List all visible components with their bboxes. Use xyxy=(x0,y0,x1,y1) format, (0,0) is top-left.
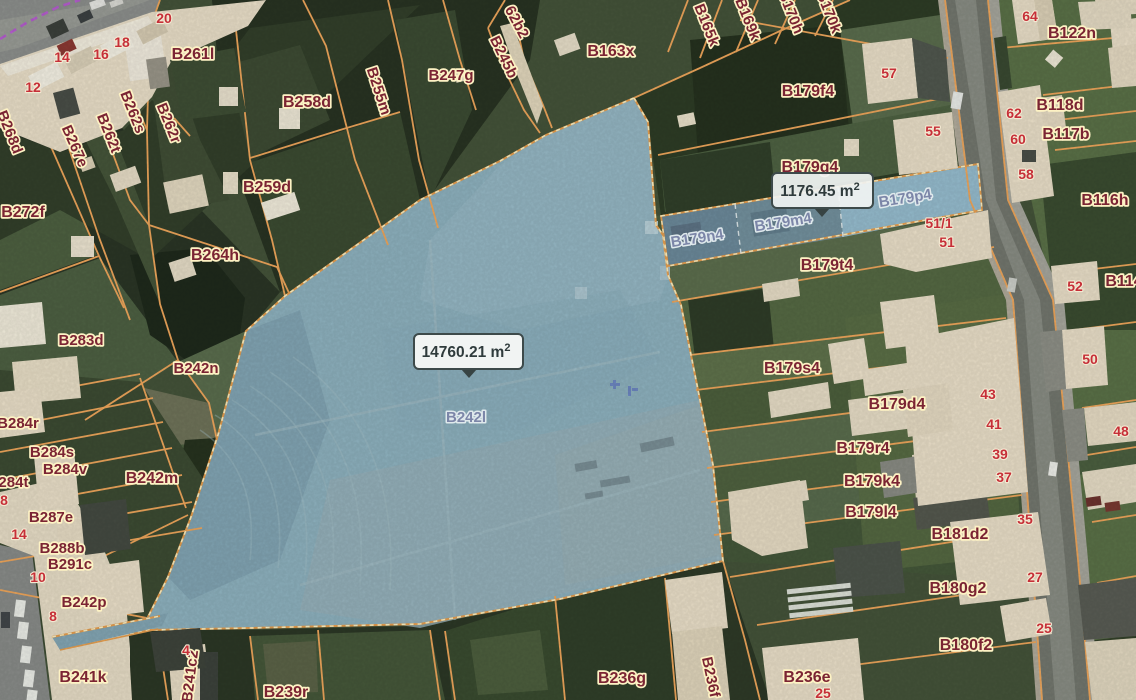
svg-text:B114: B114 xyxy=(1105,273,1136,290)
svg-text:50: 50 xyxy=(1082,351,1098,367)
svg-text:55: 55 xyxy=(925,123,941,139)
svg-text:62: 62 xyxy=(1006,105,1022,121)
svg-text:B163x: B163x xyxy=(587,43,634,60)
svg-text:B242n: B242n xyxy=(173,360,218,377)
svg-text:52: 52 xyxy=(1067,278,1083,294)
svg-text:48: 48 xyxy=(1113,423,1129,439)
svg-text:B236g: B236g xyxy=(598,670,646,687)
svg-text:27: 27 xyxy=(1027,569,1043,585)
svg-text:B291c: B291c xyxy=(48,556,92,573)
svg-text:58: 58 xyxy=(1018,166,1034,182)
svg-text:10: 10 xyxy=(30,569,46,585)
svg-text:B179s4: B179s4 xyxy=(764,360,820,377)
svg-text:B247g: B247g xyxy=(428,67,473,84)
svg-text:64: 64 xyxy=(1022,8,1038,24)
svg-text:B288b: B288b xyxy=(39,540,84,557)
svg-text:B242p: B242p xyxy=(61,594,106,611)
svg-text:B179t4: B179t4 xyxy=(801,257,854,274)
svg-text:B259d: B259d xyxy=(243,179,291,196)
svg-text:B179k4: B179k4 xyxy=(844,473,900,490)
svg-text:14: 14 xyxy=(11,526,27,542)
svg-text:60: 60 xyxy=(1010,131,1026,147)
svg-text:B179f4: B179f4 xyxy=(782,83,835,100)
svg-text:B122n: B122n xyxy=(1048,25,1096,42)
svg-text:B272f: B272f xyxy=(1,204,45,221)
svg-text:B284t: B284t xyxy=(0,474,28,491)
svg-text:37: 37 xyxy=(996,469,1012,485)
svg-text:B241k: B241k xyxy=(59,669,106,686)
svg-text:1176.45 m2: 1176.45 m2 xyxy=(780,181,859,200)
svg-text:B117b: B117b xyxy=(1042,126,1089,143)
svg-text:16: 16 xyxy=(93,46,109,62)
svg-text:18: 18 xyxy=(114,34,130,50)
svg-text:B180g2: B180g2 xyxy=(930,580,987,597)
svg-text:B179l4: B179l4 xyxy=(845,504,897,521)
svg-text:B236e: B236e xyxy=(783,669,830,686)
svg-text:35: 35 xyxy=(1017,511,1033,527)
svg-text:B264h: B264h xyxy=(191,247,239,264)
svg-text:B284v: B284v xyxy=(43,461,88,478)
svg-text:B283d: B283d xyxy=(58,332,103,349)
svg-text:B180f2: B180f2 xyxy=(940,637,993,654)
svg-text:B179r4: B179r4 xyxy=(836,440,889,457)
svg-text:B239r: B239r xyxy=(264,684,308,700)
svg-text:25: 25 xyxy=(815,685,831,700)
svg-text:20: 20 xyxy=(156,10,172,26)
svg-text:B287e: B287e xyxy=(29,509,73,526)
svg-text:41: 41 xyxy=(986,416,1002,432)
svg-text:B261l: B261l xyxy=(172,46,215,63)
svg-text:57: 57 xyxy=(881,65,897,81)
svg-text:B242m: B242m xyxy=(126,470,178,487)
svg-text:4: 4 xyxy=(182,642,190,658)
svg-text:43: 43 xyxy=(980,386,996,402)
svg-text:B284r: B284r xyxy=(0,415,39,432)
svg-text:B116h: B116h xyxy=(1081,192,1128,209)
svg-text:12: 12 xyxy=(25,79,41,95)
svg-text:B179d4: B179d4 xyxy=(869,396,926,413)
svg-text:B284s: B284s xyxy=(30,444,74,461)
svg-text:8: 8 xyxy=(0,492,8,508)
svg-text:B242l: B242l xyxy=(446,409,486,426)
svg-text:8: 8 xyxy=(49,608,57,624)
svg-text:25: 25 xyxy=(1036,620,1052,636)
svg-text:14760.21 m2: 14760.21 m2 xyxy=(422,342,511,361)
svg-text:51: 51 xyxy=(939,234,955,250)
svg-text:B181d2: B181d2 xyxy=(932,526,989,543)
svg-text:B258d: B258d xyxy=(283,94,331,111)
svg-text:B118d: B118d xyxy=(1036,97,1083,114)
svg-text:51/1: 51/1 xyxy=(925,215,952,231)
svg-text:39: 39 xyxy=(992,446,1008,462)
svg-text:14: 14 xyxy=(54,49,70,65)
